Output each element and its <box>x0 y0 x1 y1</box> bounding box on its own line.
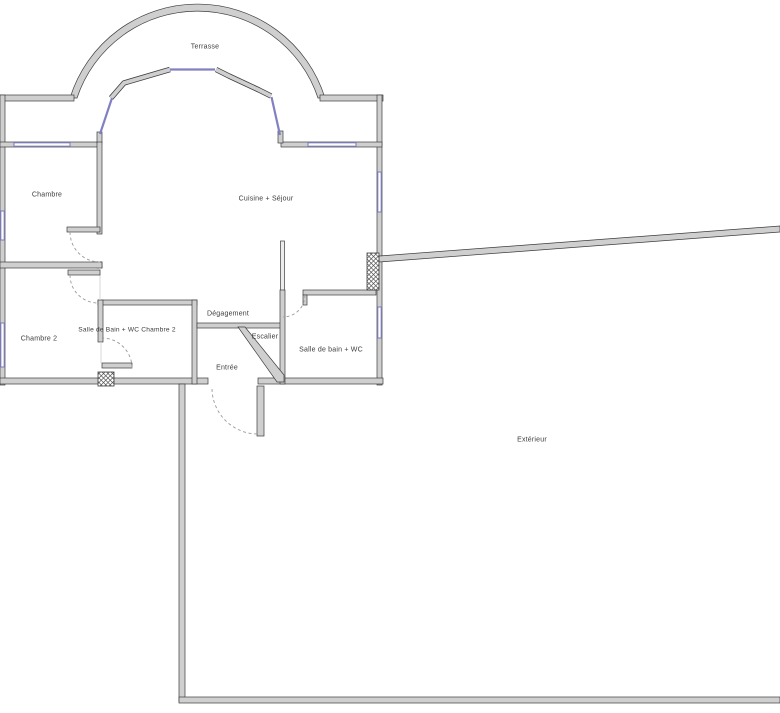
window-sdb-east <box>378 307 381 338</box>
window-chambre-west <box>1 211 4 240</box>
walls <box>0 4 780 703</box>
window-chambre-north <box>14 143 70 146</box>
floor-plan: Terrasse Chambre Cuisine + Séjour Chambr… <box>0 0 780 713</box>
terrace-arch-wall <box>70 4 325 98</box>
exterior-diagonal-wall <box>379 226 780 262</box>
floor-plan-drawing <box>0 0 780 713</box>
bay-window-left <box>100 98 112 134</box>
window-cuisine-north <box>308 143 356 146</box>
bay-window-right <box>272 97 281 135</box>
windows <box>1 70 381 368</box>
stair-run <box>238 327 284 382</box>
window-chambre2-west <box>1 323 4 367</box>
hatched-columns <box>98 253 379 386</box>
window-cuisine-east <box>378 172 381 212</box>
